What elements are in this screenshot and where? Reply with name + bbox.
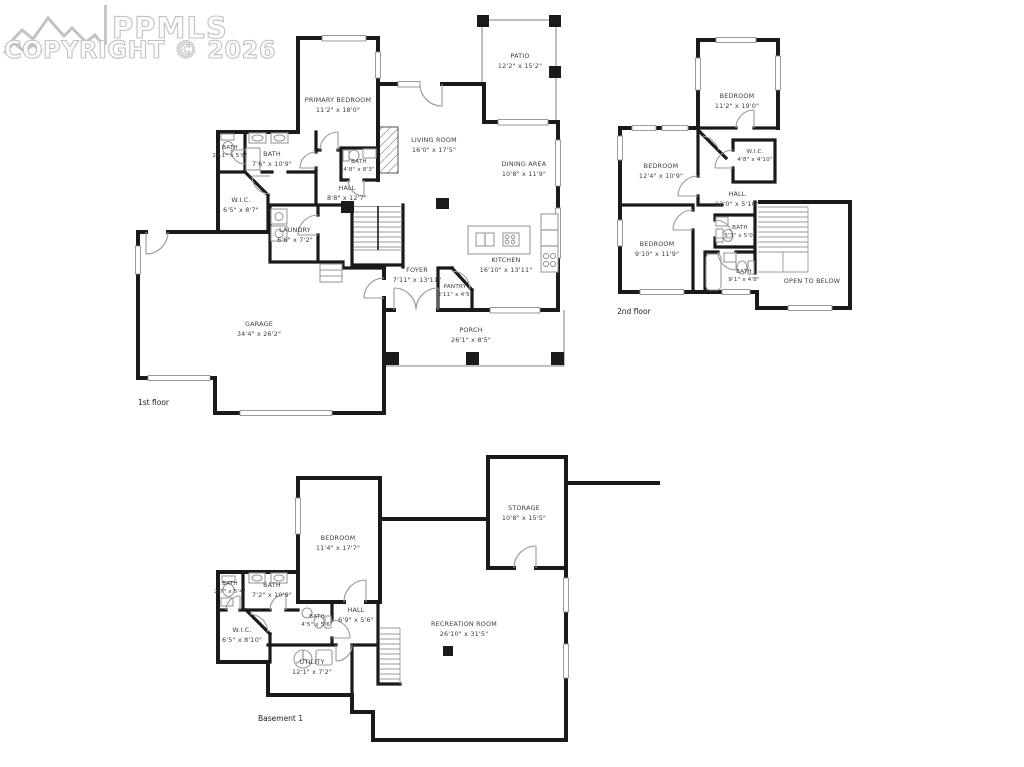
room-label-primary-bedroom: PRIMARY BEDROOM 11'2" x 18'0" <box>305 96 371 115</box>
room-label-bath-powder-1f: BATH 4'8" x 8'3" <box>343 158 375 175</box>
room-label-hall-2f: HALL 12'0" x 5'10" <box>715 190 759 209</box>
room-label-bedroom-bsmt: BEDROOM 11'4" x 17'7" <box>316 534 360 553</box>
room-label-bath-small-2f: BATH 5'3" x 5'0" <box>724 224 756 241</box>
room-label-recreation-room: RECREATION ROOM 26'10" x 31'5" <box>431 620 497 639</box>
floor-label-first: 1st floor <box>138 398 169 407</box>
garage-steps <box>320 264 342 282</box>
room-label-hall-bsmt: HALL 6'9" x 5'6" <box>338 606 374 625</box>
room-label-bath-main-2f: BATH 9'1" x 4'8" <box>728 268 760 285</box>
room-label-bath-main-1f: BATH 7'6" x 10'9" <box>252 150 292 169</box>
watermark-copyright: COPYRIGHT © 2026 <box>4 36 276 64</box>
room-label-garage: GARAGE 34'4" x 26'2" <box>237 320 281 339</box>
room-label-foyer: FOYER 7'11" x 13'11" <box>393 266 442 285</box>
room-label-wic-1f: W.I.C. 6'5" x 8'7" <box>223 196 259 215</box>
second-floor-stairs <box>758 207 808 272</box>
watermark: PPMLS COPYRIGHT © 2026 <box>0 0 260 80</box>
room-label-patio: PATIO 12'2" x 15'2" <box>498 52 542 71</box>
floor-label-basement: Basement 1 <box>258 714 303 723</box>
room-label-bedroom-left-2f: BEDROOM 12'4" x 10'9" <box>639 162 683 181</box>
room-label-hall-1f: HALL 8'8" x 12'7" <box>327 184 367 203</box>
room-label-utility: UTILITY 12'1" x 7'2" <box>292 658 332 677</box>
room-label-bedroom-bottom-2f: BEDROOM 9'10" x 11'9" <box>635 240 679 259</box>
room-label-bath-main-bsmt: BATH 7'2" x 10'9" <box>252 581 292 600</box>
room-label-porch: PORCH 26'1" x 8'5" <box>451 326 491 345</box>
room-label-bath-small-bsmt: BATH 2'7" x 5'4" <box>214 580 246 597</box>
floor-label-second: 2nd floor <box>617 307 651 316</box>
room-label-bath-small-1f: BATH 2'11" x 5'8" <box>212 144 247 161</box>
room-label-kitchen: KITCHEN 16'10" x 13'11" <box>480 256 533 275</box>
room-label-open-to-below: OPEN TO BELOW <box>784 277 840 287</box>
room-label-living-room: LIVING ROOM 16'0" x 17'5" <box>411 136 457 155</box>
floorplan-svg <box>0 0 1024 767</box>
basement-stairs <box>380 628 400 684</box>
room-label-bath-three-quarter-bsmt: BATH 4'5" x 5'6" <box>301 613 333 630</box>
floorplan-page: PRIMARY BEDROOM 11'2" x 18'0" BATH 2'11"… <box>0 0 1024 767</box>
room-label-wic-2f: W.I.C. 4'8" x 4'10" <box>737 148 772 165</box>
room-label-bedroom-top-2f: BEDROOM 11'2" x 19'0" <box>715 92 759 111</box>
room-label-pantry: PANTRY 3'11" x 4'5" <box>437 283 472 300</box>
room-label-wic-bsmt: W.I.C. 6'5" x 8'10" <box>222 626 262 645</box>
room-label-dining-area: DINING AREA 10'8" x 11'9" <box>502 160 547 179</box>
first-floor-stairs <box>341 201 402 250</box>
room-label-laundry: LAUNDRY 6'6" x 7'2" <box>277 226 313 245</box>
room-label-storage: STORAGE 10'8" x 15'5" <box>502 504 546 523</box>
